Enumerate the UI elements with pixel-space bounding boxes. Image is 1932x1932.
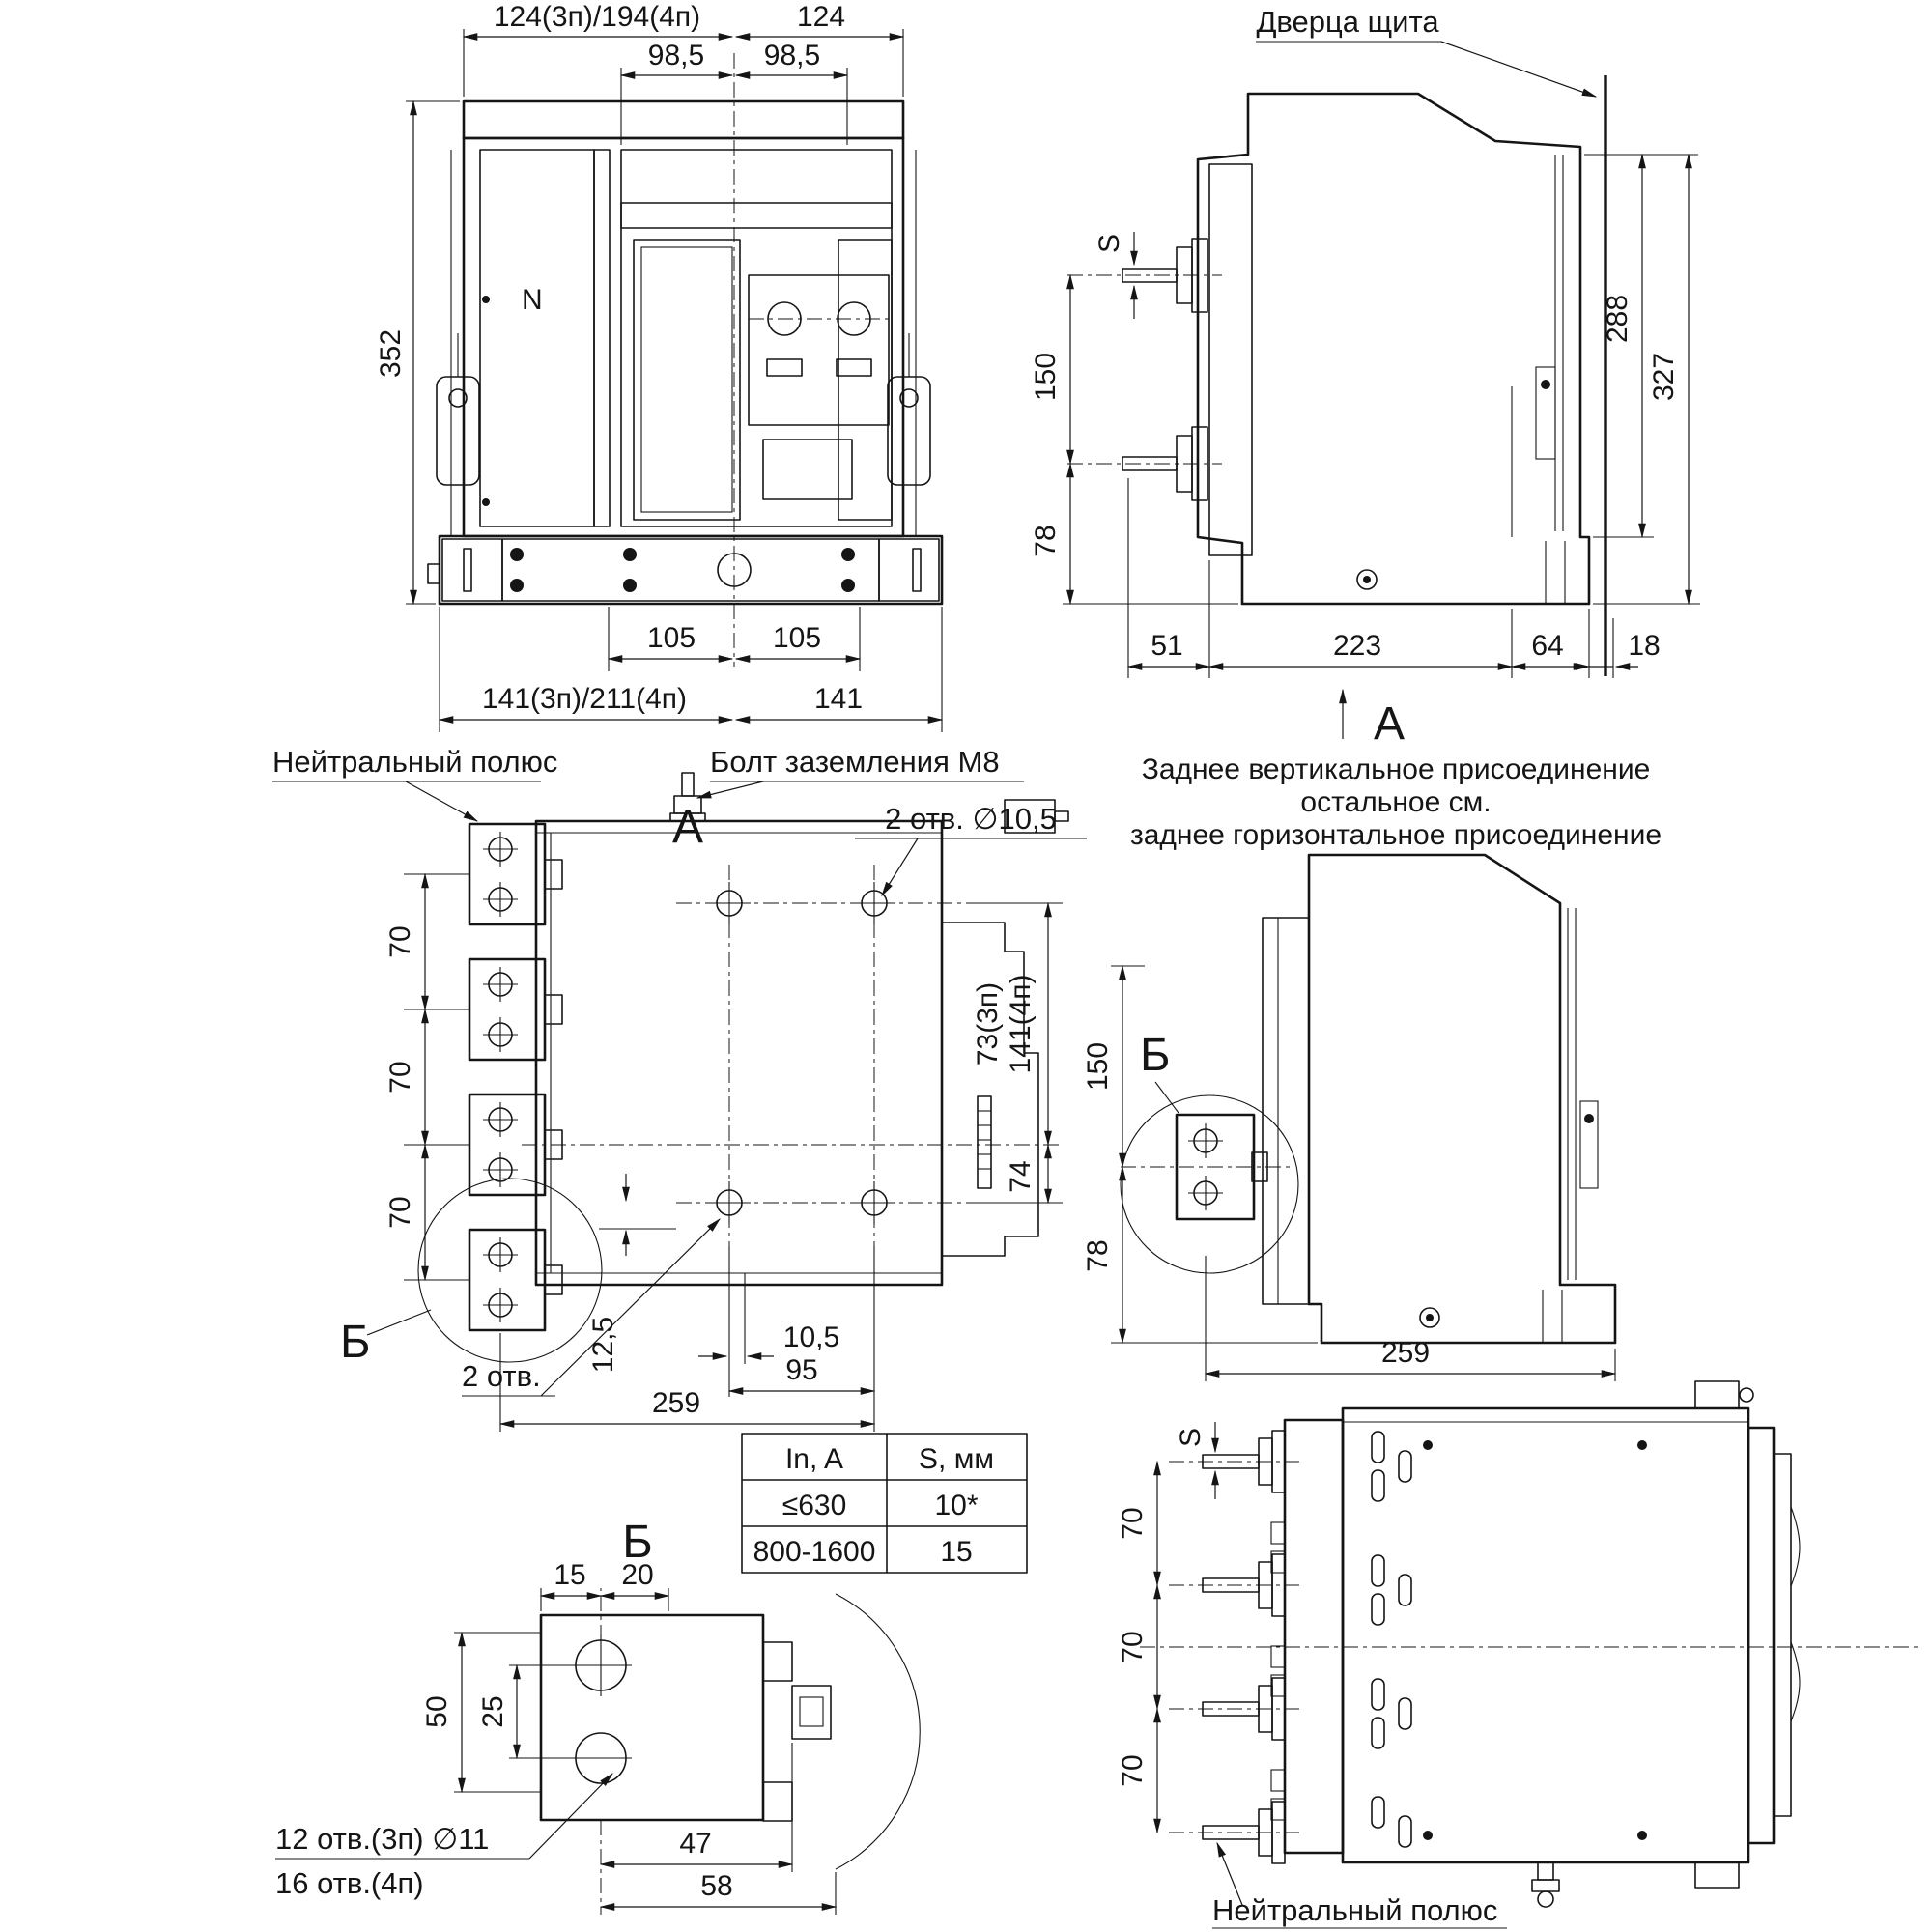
dim-985-left: 98,5 [648,40,704,71]
rack-detail [978,1096,991,1188]
detail-b-mark: Б [340,1317,371,1368]
dim-327: 327 [1648,353,1680,401]
dim-78: 78 [1030,525,1062,556]
top-view: S 70 70 70 Нейтральный полюс [1117,1381,1922,1928]
section-a-label: А [1374,698,1405,750]
dim-height: 352 [375,329,407,378]
dim-74: 74 [1005,1160,1037,1192]
rear-vertical-side-view: Б 150 78 259 [1082,855,1615,1381]
dim-bottom-right: 141 [814,683,863,715]
pole-terminal [469,1094,562,1195]
dim-51: 51 [1151,630,1182,662]
table-r1c1: ≤630 [782,1490,847,1521]
current-thickness-table: In, A S, мм ≤630 10* 800-1600 15 [742,1434,1027,1573]
din-bracket [1580,1101,1598,1188]
dim-259: 259 [1381,1337,1430,1369]
ground-bolt-label: Болт заземления М8 [710,745,1000,779]
top-terminal-2 [1169,1554,1299,1616]
vertical-terminal [1121,1115,1290,1219]
table-r2c1: 800-1600 [753,1536,876,1568]
dim-width-left: 124(3п)/194(4п) [494,1,700,33]
dim-73-3p: 73(3п) [972,982,1004,1065]
dim-78: 78 [1082,1239,1114,1271]
dim-15: 15 [554,1559,585,1591]
table-header-in: In, A [785,1443,843,1475]
holes-d105-label: 2 отв. ∅10,5 [885,802,1057,836]
drawing-canvas: 124(3п)/194(4п) 124 98,5 98,5 352 N 105 … [0,0,1932,1932]
dim-pitch-2: 70 [384,1061,416,1093]
dim-105-left: 105 [647,622,696,654]
dim-pitch-2: 70 [1117,1631,1149,1662]
bottom-bolt-icon [1532,1862,1559,1907]
dim-bottom-left: 141(3п)/211(4п) [482,683,687,715]
dim-58: 58 [700,1870,732,1902]
holes-16-label: 16 отв.(4п) [275,1866,424,1900]
dim-10-5: 10,5 [783,1321,839,1353]
drawing-page: 124(3п)/194(4п) 124 98,5 98,5 352 N 105 … [0,0,1932,1932]
detail-b-view: Б 15 20 50 25 47 58 12 отв.(3п) [275,1517,920,1915]
neutral-terminal [469,824,562,924]
table-r2c2: 15 [940,1536,972,1568]
dim-s: S [1094,234,1125,253]
table-r1c2: 10* [934,1490,978,1521]
dim-50: 50 [421,1695,453,1727]
table-header-s: S, мм [919,1443,994,1475]
mounting-holes [708,882,895,1224]
dim-18: 18 [1628,630,1660,662]
front-view: 124(3п)/194(4п) 124 98,5 98,5 352 N 105 … [375,1,942,853]
pole-terminal [469,1230,562,1330]
holes-12-label: 12 отв.(3п) ∅11 [275,1822,489,1856]
dim-20: 20 [621,1559,653,1591]
dim-985-right: 98,5 [764,40,820,71]
dim-223: 223 [1333,630,1381,662]
dim-pitch-1: 70 [384,925,416,957]
dim-288: 288 [1602,295,1634,343]
dim-25: 25 [477,1695,509,1727]
top-terminal-3 [1169,1678,1299,1740]
front-view-label: А [672,802,703,853]
neutral-pole-label: Нейтральный полюс [1212,1893,1497,1927]
dim-141-4p: 141(4п) [1005,975,1037,1074]
din-bracket [1536,367,1555,459]
dim-width-right: 124 [797,1,845,33]
neutral-pole-label: Нейтральный полюс [272,745,557,779]
dim-47: 47 [679,1828,711,1860]
dim-150: 150 [1082,1042,1114,1091]
dim-pitch-3: 70 [384,1196,416,1228]
rear-horizontal-side-view: Дверца щита S 150 78 288 327 51 223 [1030,5,1700,851]
dim-95: 95 [785,1354,817,1386]
dim-64: 64 [1531,630,1563,662]
dim-pitch-1: 70 [1117,1507,1149,1539]
holes-2-label: 2 отв. [462,1359,541,1393]
caption-line2: остальное см. [1300,786,1491,818]
top-terminal-4-neutral [1169,1802,1299,1863]
pole-terminal [469,959,562,1060]
neutral-pole-mark: N [522,284,543,316]
dim-150: 150 [1030,353,1062,401]
door-label: Дверца щита [1256,5,1439,39]
detail-b-mark: Б [1140,1030,1171,1081]
control-panel [749,275,889,499]
dim-pitch-3: 70 [1117,1754,1149,1786]
side-lug-right [888,333,930,485]
dim-105-right: 105 [773,622,821,654]
caption-line1: Заднее вертикальное присоединение [1142,753,1651,785]
caption-line3: заднее горизонтальное присоединение [1130,819,1662,851]
dim-259: 259 [652,1387,700,1419]
dim-s: S [1175,1428,1207,1447]
mounting-rail [428,536,942,604]
side-lug-left [437,333,479,485]
